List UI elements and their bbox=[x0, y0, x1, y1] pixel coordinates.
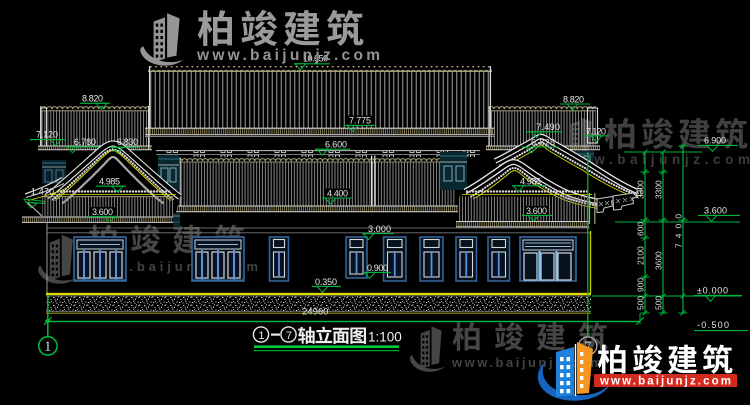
svg-text:±0.000: ±0.000 bbox=[697, 286, 728, 296]
svg-text:900: 900 bbox=[636, 278, 646, 292]
svg-text:500: 500 bbox=[654, 296, 664, 310]
svg-text:0.900: 0.900 bbox=[367, 263, 388, 273]
svg-text:3600: 3600 bbox=[654, 251, 664, 270]
svg-text:6.600: 6.600 bbox=[325, 140, 347, 150]
svg-text:3300: 3300 bbox=[636, 180, 646, 199]
svg-text:24960: 24960 bbox=[302, 307, 328, 318]
svg-text:7.120: 7.120 bbox=[36, 130, 58, 140]
svg-text:-0.500: -0.500 bbox=[697, 320, 729, 330]
svg-text:7.120: 7.120 bbox=[586, 127, 606, 137]
svg-text:7.490: 7.490 bbox=[536, 122, 560, 132]
svg-text:8.820: 8.820 bbox=[82, 94, 103, 104]
svg-text:3300: 3300 bbox=[654, 180, 664, 199]
svg-text:0.350: 0.350 bbox=[315, 277, 337, 287]
svg-text:3.600: 3.600 bbox=[92, 207, 113, 217]
svg-text:8.820: 8.820 bbox=[563, 95, 584, 105]
svg-text:600: 600 bbox=[636, 222, 646, 236]
svg-text:500: 500 bbox=[636, 296, 646, 310]
svg-text:4.400: 4.400 bbox=[327, 189, 348, 199]
svg-text:3.600: 3.600 bbox=[526, 206, 547, 216]
svg-text:4.985: 4.985 bbox=[520, 177, 541, 187]
svg-text:6.825: 6.825 bbox=[531, 138, 555, 148]
svg-text:7.775: 7.775 bbox=[349, 116, 371, 126]
svg-text:1: 1 bbox=[258, 330, 264, 342]
svg-text:3.000: 3.000 bbox=[368, 224, 391, 234]
svg-text:6.830: 6.830 bbox=[117, 137, 138, 147]
svg-text:6.780: 6.780 bbox=[74, 137, 96, 147]
svg-text:1.470: 1.470 bbox=[31, 187, 54, 197]
svg-text:7: 7 bbox=[286, 330, 292, 342]
svg-text:4.985: 4.985 bbox=[99, 177, 120, 187]
svg-text:1: 1 bbox=[44, 339, 52, 355]
svg-text:2100: 2100 bbox=[636, 246, 646, 265]
svg-text:3.600: 3.600 bbox=[704, 206, 727, 216]
svg-text:1:100: 1:100 bbox=[368, 330, 402, 345]
svg-text:6.900: 6.900 bbox=[704, 136, 726, 146]
